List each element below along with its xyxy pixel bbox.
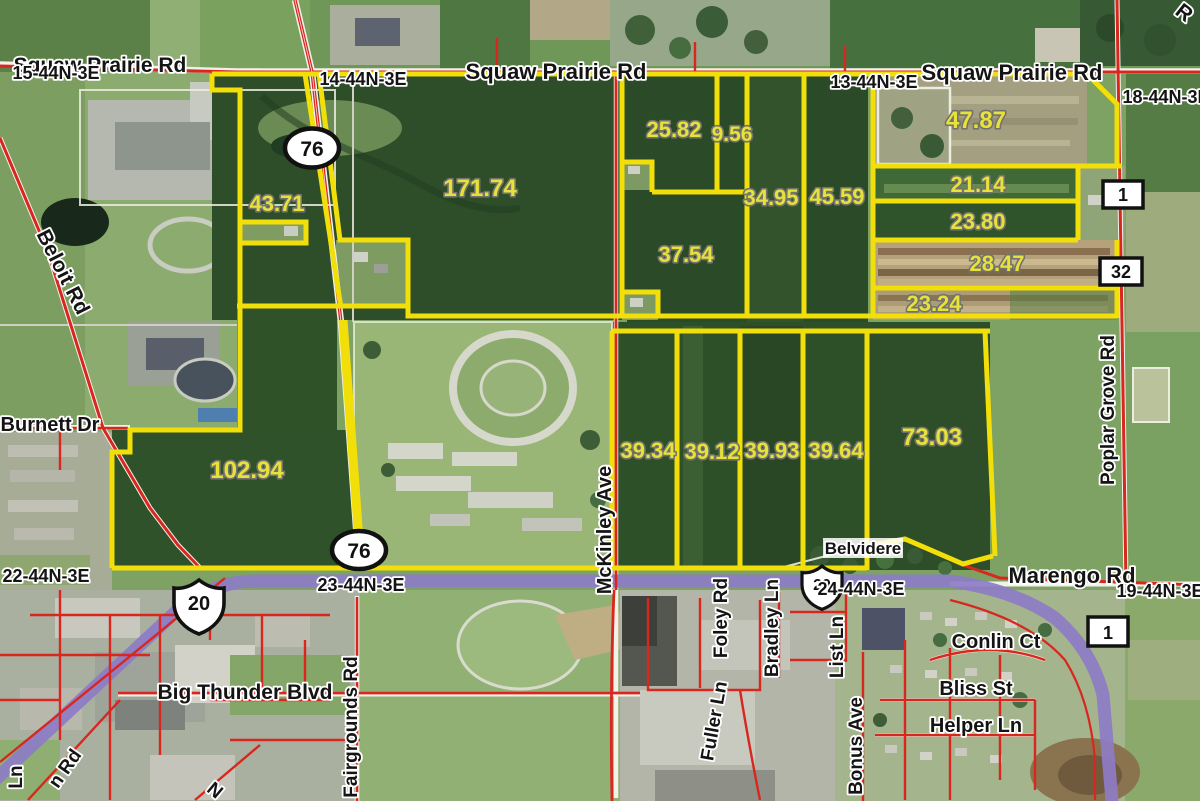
road-label-squaw-prairie-center: Squaw Prairie Rd xyxy=(466,59,647,84)
route-marker-32: 32 xyxy=(1100,258,1142,285)
section-label-14: 14-44N-3E xyxy=(319,69,406,89)
section-label-24: 24-44N-3E xyxy=(817,579,904,599)
plat-map-canvas: 76 76 20 20 1 32 1 43.71 171.74 25.82 9.… xyxy=(0,0,1200,801)
road-label-fairgrounds: Fairgrounds Rd xyxy=(341,656,362,797)
section-label-13: 13-44N-3E xyxy=(830,72,917,92)
road-label-ln-fragment: Ln xyxy=(6,765,27,788)
section-label-15: 15-44N-3E xyxy=(12,63,99,83)
acreage-label: 28.47 xyxy=(969,251,1024,276)
acreage-label: 73.03 xyxy=(902,424,962,451)
acreage-label: 102.94 xyxy=(210,457,284,484)
acreage-label: 47.87 xyxy=(946,107,1006,134)
section-label-23: 23-44N-3E xyxy=(317,575,404,595)
us-20-number: 20 xyxy=(188,593,210,615)
acreage-label: 37.54 xyxy=(658,242,714,267)
road-label-helper: Helper Ln xyxy=(930,715,1022,737)
route-1-number: 1 xyxy=(1118,185,1128,205)
acreage-label: 171.74 xyxy=(443,175,517,202)
city-label-belvidere: Belvidere xyxy=(825,539,902,558)
section-label-22: 22-44N-3E xyxy=(2,566,89,586)
section-label-19: 19-44N-3E xyxy=(1116,581,1200,601)
acreage-label: 9.56 xyxy=(712,123,753,146)
acreage-label: 21.14 xyxy=(950,172,1006,197)
road-label-big-thunder: Big Thunder Blvd xyxy=(158,681,333,704)
section-label-18: 18-44N-3E xyxy=(1122,87,1200,107)
road-label-mckinley: McKinley Ave xyxy=(594,466,616,595)
road-label-bliss: Bliss St xyxy=(939,678,1013,700)
road-label-list: List Ln xyxy=(827,616,848,678)
il-76-number: 76 xyxy=(347,540,370,563)
acreage-label: 25.82 xyxy=(646,117,701,142)
acreage-label: 45.59 xyxy=(809,184,864,209)
road-label-bradley: Bradley Ln xyxy=(762,579,783,677)
il-76-shield-south: 76 xyxy=(332,531,386,569)
il-76-number: 76 xyxy=(300,138,323,161)
road-label-squaw-prairie-east: Squaw Prairie Rd xyxy=(922,60,1103,85)
acreage-label: 23.80 xyxy=(950,209,1005,234)
acreage-label: 39.93 xyxy=(744,438,799,463)
route-1-number: 1 xyxy=(1103,623,1113,643)
acreage-label: 39.64 xyxy=(808,438,864,463)
route-marker-1-south: 1 xyxy=(1088,617,1128,646)
route-32-number: 32 xyxy=(1111,262,1131,282)
route-marker-1-north: 1 xyxy=(1103,181,1143,208)
acreage-label: 23.24 xyxy=(906,291,962,316)
acreage-label: 39.34 xyxy=(620,438,676,463)
road-label-bonus: Bonus Ave xyxy=(846,697,867,795)
place-labels: Belvidere xyxy=(823,538,903,558)
acreage-label: 39.12 xyxy=(684,439,739,464)
road-label-poplar-grove: Poplar Grove Rd xyxy=(1098,335,1119,485)
road-label-conlin: Conlin Ct xyxy=(952,631,1041,653)
road-label-burnett: Burnett Dr xyxy=(1,414,100,436)
il-76-shield-north: 76 xyxy=(285,129,339,168)
road-label-foley: Foley Rd xyxy=(711,578,732,658)
acreage-label: 34.95 xyxy=(743,185,798,210)
acreage-label: 43.71 xyxy=(249,191,304,216)
